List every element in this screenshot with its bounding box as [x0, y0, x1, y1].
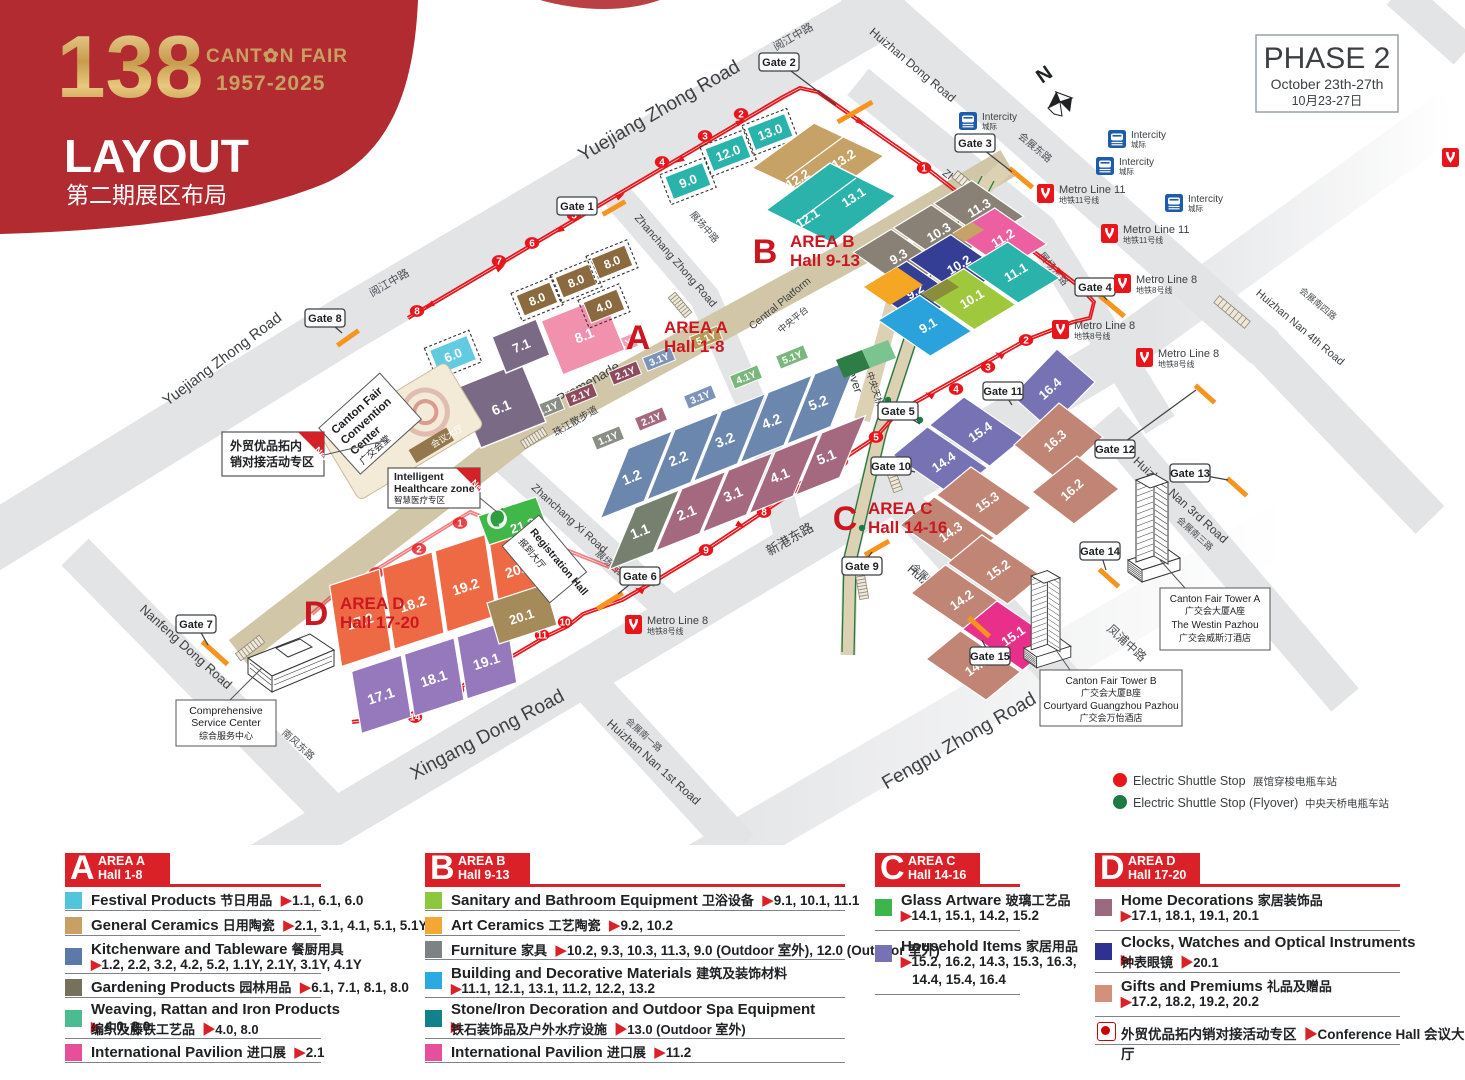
svg-text:9: 9: [703, 545, 709, 556]
svg-text:AREA D: AREA D: [340, 594, 405, 613]
svg-text:Metro Line 8: Metro Line 8: [1074, 320, 1135, 332]
svg-text:Hall 9-13: Hall 9-13: [790, 251, 860, 270]
svg-text:Gate 3: Gate 3: [958, 138, 992, 150]
svg-text:中央天桥电瓶车站: 中央天桥电瓶车站: [1305, 797, 1389, 810]
svg-text:Metro Line 8: Metro Line 8: [647, 615, 708, 627]
svg-text:B: B: [753, 233, 778, 271]
svg-text:地铁8号线: 地铁8号线: [1158, 359, 1194, 369]
svg-text:October 23th-27th: October 23th-27th: [1271, 76, 1384, 92]
svg-text:Metro Line 11: Metro Line 11: [1123, 224, 1189, 236]
svg-text:广交会大厦B座: 广交会大厦B座: [1081, 687, 1141, 698]
svg-text:Gate 10: Gate 10: [871, 461, 911, 473]
svg-text:城际: 城际: [1119, 167, 1135, 176]
svg-text:The Westin Pazhou: The Westin Pazhou: [1171, 620, 1258, 631]
svg-text:1: 1: [921, 163, 927, 174]
svg-text:3: 3: [702, 131, 708, 142]
svg-text:Gate 1: Gate 1: [560, 201, 594, 213]
svg-text:外贸优品拓内: 外贸优品拓内: [230, 438, 302, 453]
svg-text:4: 4: [953, 384, 959, 395]
svg-text:PHASE 2: PHASE 2: [1264, 42, 1391, 75]
svg-text:CANT✿N FAIR: CANT✿N FAIR: [206, 46, 348, 67]
svg-text:AREA A: AREA A: [664, 318, 728, 337]
svg-text:Canton Fair Tower A: Canton Fair Tower A: [1170, 594, 1261, 605]
svg-text:Healthcare zone: Healthcare zone: [394, 483, 475, 495]
svg-text:Comprehensive: Comprehensive: [189, 705, 263, 717]
svg-text:智慧医疗专区: 智慧医疗专区: [394, 495, 446, 505]
svg-text:广交会万怡酒店: 广交会万怡酒店: [1079, 712, 1142, 723]
svg-text:1957-2025: 1957-2025: [216, 72, 325, 95]
svg-text:11: 11: [537, 630, 548, 641]
svg-text:Gate 9: Gate 9: [845, 561, 879, 573]
svg-text:Gate 7: Gate 7: [179, 619, 213, 631]
svg-text:Gate 12: Gate 12: [1095, 444, 1135, 456]
svg-text:A: A: [626, 319, 651, 357]
svg-text:城际: 城际: [1188, 204, 1204, 213]
svg-text:综合服务中心: 综合服务中心: [199, 730, 253, 741]
svg-text:D: D: [304, 595, 329, 633]
svg-text:4: 4: [659, 157, 665, 168]
svg-text:会展南四路: 会展南四路: [1297, 285, 1339, 322]
svg-text:Electric Shuttle Stop: Electric Shuttle Stop: [1133, 774, 1246, 788]
svg-text:LAYOUT: LAYOUT: [64, 130, 249, 182]
svg-text:地铁8号线: 地铁8号线: [1074, 331, 1110, 341]
svg-text:C: C: [833, 500, 858, 538]
svg-text:5: 5: [873, 432, 879, 443]
svg-text:地铁8号线: 地铁8号线: [1136, 285, 1172, 295]
svg-text:6: 6: [529, 238, 535, 249]
svg-text:Intelligent: Intelligent: [394, 471, 444, 483]
svg-text:1: 1: [457, 518, 463, 529]
svg-text:Gate 6: Gate 6: [623, 571, 657, 583]
svg-text:10月23-27日: 10月23-27日: [1292, 94, 1363, 108]
svg-text:Hall 14-16: Hall 14-16: [868, 518, 947, 537]
svg-text:广交会威斯汀酒店: 广交会威斯汀酒店: [1179, 632, 1251, 643]
svg-text:Gate 4: Gate 4: [1078, 282, 1113, 294]
svg-text:10: 10: [559, 617, 571, 628]
svg-text:Electric Shuttle Stop (Flyover: Electric Shuttle Stop (Flyover): [1133, 796, 1298, 810]
svg-text:第二期展区布局: 第二期展区布局: [66, 182, 227, 208]
svg-text:Courtyard Guangzhou Pazhou: Courtyard Guangzhou Pazhou: [1043, 701, 1178, 712]
svg-text:Gate 5: Gate 5: [881, 406, 915, 418]
svg-text:Gate 8: Gate 8: [308, 313, 342, 325]
svg-text:Gate 13: Gate 13: [1170, 468, 1210, 480]
svg-text:Metro Line 11: Metro Line 11: [1059, 184, 1125, 196]
svg-text:8: 8: [414, 306, 420, 317]
svg-text:AREA C: AREA C: [868, 499, 933, 518]
svg-text:2: 2: [416, 544, 422, 555]
svg-text:Gate 2: Gate 2: [762, 57, 796, 69]
svg-text:城际: 城际: [1131, 140, 1147, 149]
svg-text:展场中路: 展场中路: [687, 209, 721, 246]
svg-text:销对接活动专区: 销对接活动专区: [230, 454, 314, 469]
svg-text:3: 3: [985, 362, 991, 373]
svg-text:7: 7: [496, 256, 502, 267]
svg-text:2: 2: [1023, 335, 1029, 346]
svg-text:展馆穿梭电瓶车站: 展馆穿梭电瓶车站: [1253, 775, 1337, 788]
svg-text:Gate 11: Gate 11: [983, 386, 1022, 398]
svg-text:Hall 17-20: Hall 17-20: [340, 613, 419, 632]
svg-text:城际: 城际: [982, 122, 997, 131]
svg-text:Service Center: Service Center: [191, 717, 261, 729]
svg-text:AREA B: AREA B: [790, 232, 855, 251]
svg-text:138: 138: [57, 17, 204, 116]
svg-text:地铁11号线: 地铁11号线: [1123, 235, 1163, 245]
svg-text:地铁11号线: 地铁11号线: [1059, 195, 1099, 205]
svg-text:Hall 1-8: Hall 1-8: [664, 337, 724, 356]
svg-text:N: N: [1032, 62, 1056, 88]
svg-text:2: 2: [738, 109, 744, 120]
svg-text:地铁8号线: 地铁8号线: [647, 626, 683, 636]
svg-text:Gate 15: Gate 15: [970, 651, 1010, 663]
svg-text:广交会大厦A座: 广交会大厦A座: [1185, 605, 1245, 616]
svg-text:Gate 14: Gate 14: [1080, 546, 1121, 558]
svg-text:Metro Line 8: Metro Line 8: [1158, 348, 1219, 360]
svg-text:Metro Line 8: Metro Line 8: [1136, 274, 1197, 286]
svg-text:Canton Fair Tower B: Canton Fair Tower B: [1066, 676, 1157, 687]
